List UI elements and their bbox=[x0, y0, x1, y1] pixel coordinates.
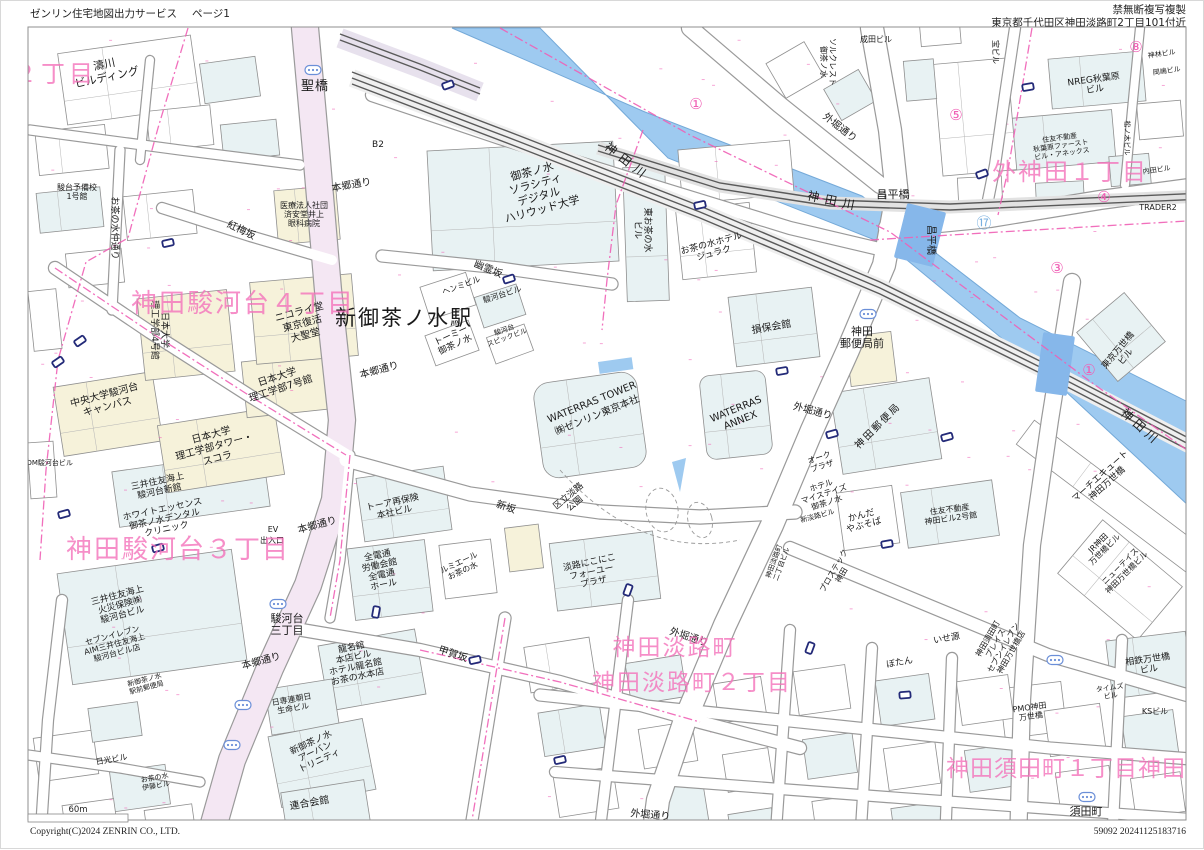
building-block bbox=[28, 289, 62, 352]
bus-stop-icon bbox=[881, 540, 893, 548]
metro-entrance-icon bbox=[235, 701, 251, 710]
district-area-label: 神田駿河台３丁目 bbox=[66, 535, 290, 565]
bus-stop-icon bbox=[899, 691, 911, 698]
metro-entrance-icon bbox=[1047, 656, 1063, 665]
building-block bbox=[802, 733, 857, 780]
district-area-label: 外神田１丁目 bbox=[992, 158, 1148, 186]
zenrin-map-page: ゼンリン住宅地図出力サービス ページ1 禁無断複写複製 東京都千代田区神田淡路町… bbox=[0, 0, 1204, 850]
building-block bbox=[956, 675, 1014, 726]
route-number-shield: ④ bbox=[1097, 188, 1110, 206]
map-label: KSビル bbox=[1142, 707, 1168, 716]
copy-prohibition-notice: 禁無断複写複製 bbox=[1113, 3, 1187, 16]
bus-stop-icon bbox=[469, 656, 481, 665]
map-label: EV bbox=[268, 525, 279, 534]
building-block bbox=[27, 441, 57, 499]
route-number-shield: ① bbox=[1082, 361, 1095, 379]
map-label: 成田ビル bbox=[860, 34, 892, 44]
building-block bbox=[793, 665, 851, 716]
building-block bbox=[88, 702, 142, 743]
route-number-shield: ⑧ bbox=[1129, 38, 1142, 56]
building-block bbox=[903, 59, 936, 101]
map-label: 昌平橋 bbox=[925, 225, 938, 255]
bus-stop-icon bbox=[776, 367, 788, 375]
print-code: 59092 20241125183716 bbox=[1094, 827, 1187, 837]
map-label: TRADER2 bbox=[1138, 203, 1176, 212]
building-block bbox=[883, 742, 940, 791]
metro-entrance-icon bbox=[305, 66, 321, 75]
route-number-shield: ③ bbox=[1050, 259, 1063, 277]
map-label: 須田町 bbox=[1070, 805, 1103, 818]
metro-entrance-icon bbox=[224, 741, 240, 750]
district-area-label: 神田駿河台４丁目 bbox=[131, 289, 355, 319]
metro-entrance-icon bbox=[1079, 793, 1095, 802]
district-area-label: 神田須田町１丁目神田多 bbox=[946, 756, 1204, 782]
map-label: 新御茶ノ水駅 bbox=[335, 306, 473, 330]
road bbox=[945, 658, 952, 845]
map-label: 昌平橋 bbox=[877, 187, 910, 201]
building-block bbox=[199, 56, 260, 103]
copyright-text: Copyright(C)2024 ZENRIN CO., LTD. bbox=[30, 826, 180, 837]
scale-bar bbox=[28, 814, 128, 822]
bus-stop-icon bbox=[1022, 83, 1034, 91]
route-number-shield: ⑤ bbox=[949, 106, 962, 124]
route-number-shield: ① bbox=[689, 95, 702, 113]
metro-entrance-icon bbox=[860, 310, 876, 319]
building-block bbox=[538, 703, 606, 756]
map-label: お茶の水仲通り bbox=[109, 196, 121, 259]
service-title: ゼンリン住宅地図出力サービス bbox=[30, 7, 177, 20]
bus-stop-icon bbox=[372, 606, 380, 618]
map-label: B2 bbox=[372, 140, 384, 150]
map-label: 聖橋 bbox=[301, 79, 329, 94]
district-area-label: 神田淡路町 bbox=[613, 635, 738, 661]
building-block bbox=[53, 372, 163, 457]
building-block bbox=[57, 549, 247, 684]
map-label: 宝ビル bbox=[991, 40, 1001, 64]
metro-entrance-icon bbox=[270, 600, 286, 609]
bus-stop-icon bbox=[162, 239, 174, 248]
map-label: 松ノ木ビル bbox=[1123, 121, 1132, 156]
bus-stop-icon bbox=[554, 756, 566, 765]
district-area-label: 神田淡路町２丁目 bbox=[592, 670, 792, 696]
bus-stop-icon bbox=[694, 201, 706, 210]
scale-bar-label: 60m bbox=[68, 805, 87, 815]
route-number-shield: ⑰ bbox=[976, 214, 991, 232]
map-label: 駿河台三丁目 bbox=[271, 611, 304, 637]
page-number: ページ1 bbox=[192, 8, 230, 20]
building-block bbox=[504, 524, 543, 572]
building-block bbox=[1137, 100, 1184, 140]
building-block bbox=[875, 673, 935, 726]
